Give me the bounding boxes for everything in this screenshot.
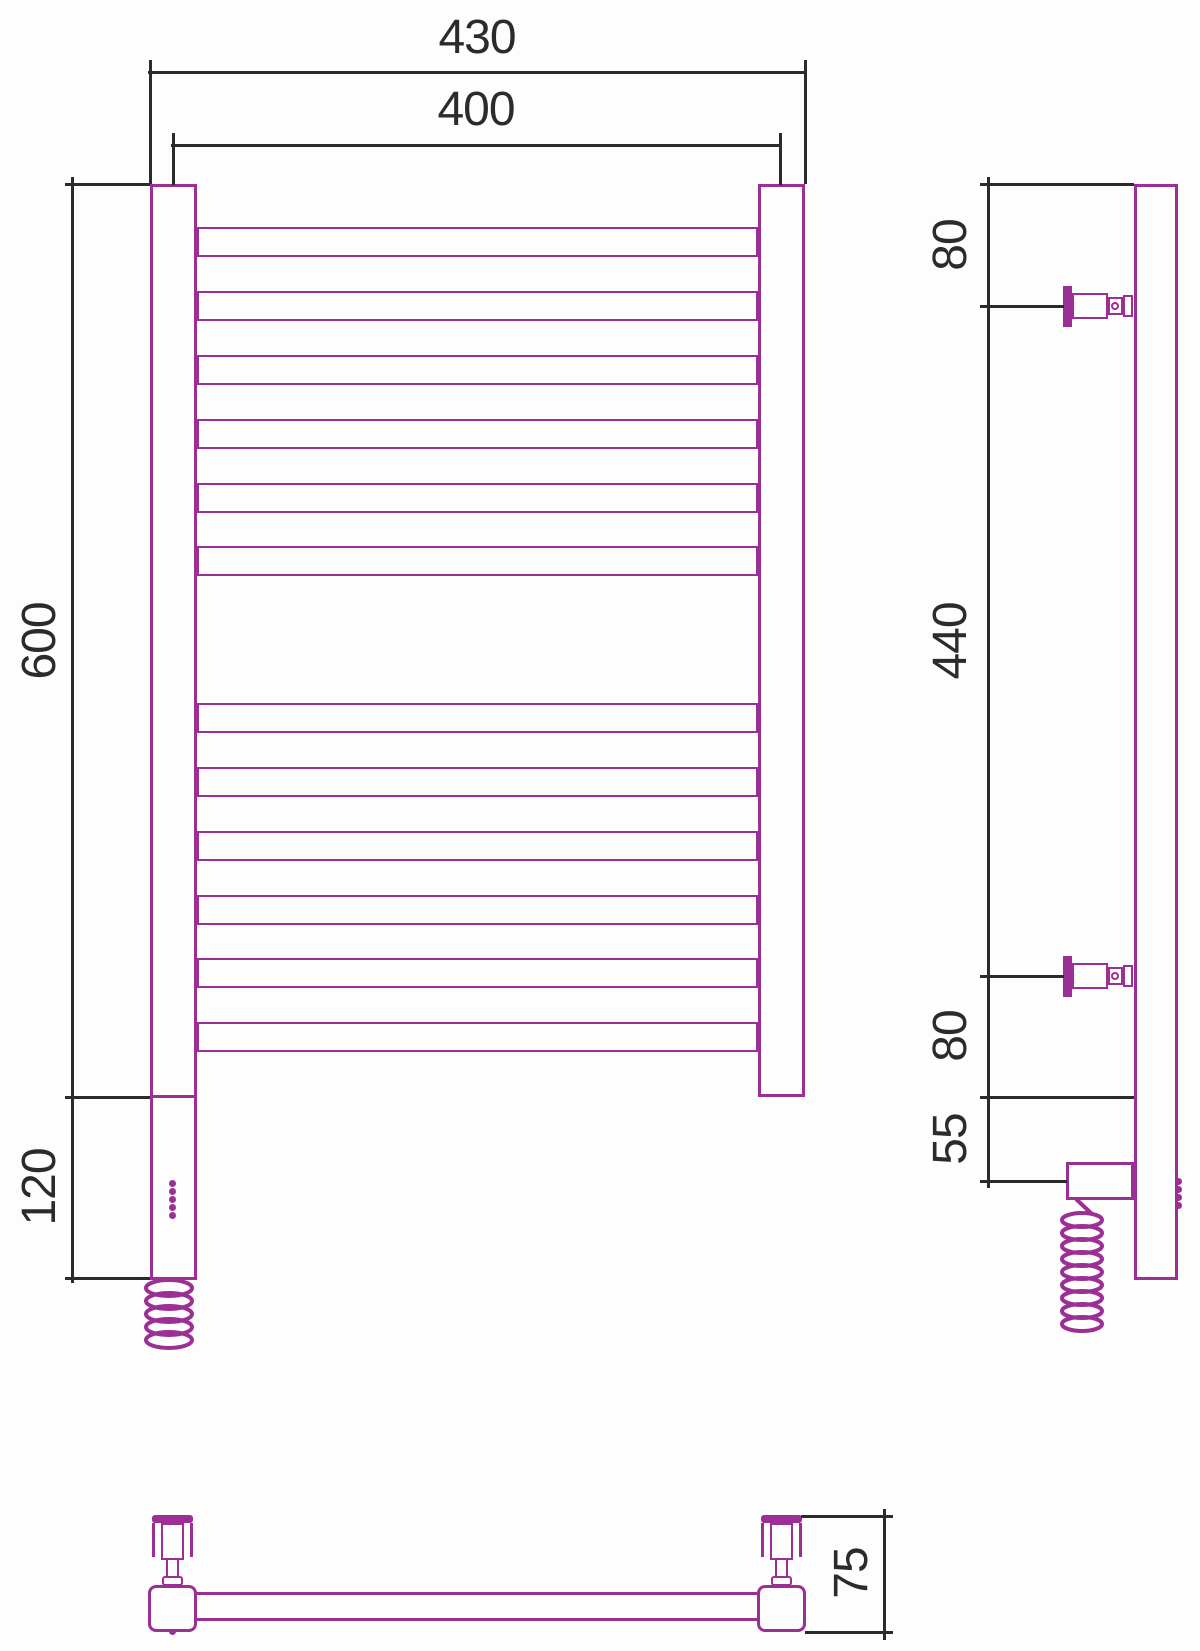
technical-drawing-canvas: 430 400 600 120: [0, 0, 1200, 1651]
plan-left-bracket-skirt: [190, 1523, 193, 1557]
plan-right-bracket-skirt: [799, 1523, 802, 1557]
plan-left-bracket-flange: [152, 1515, 193, 1523]
plan-left-bracket-foot: [162, 1576, 183, 1586]
plan-left-bracket-barrel: [161, 1523, 184, 1560]
tick-75-top: [801, 1515, 893, 1518]
plan-right-bracket-barrel: [770, 1523, 793, 1560]
plan-right-post: [757, 1585, 806, 1632]
dim-line-75: [883, 1509, 886, 1640]
plan-left-bracket-skirt: [152, 1523, 155, 1557]
plan-tube: [197, 1592, 757, 1621]
plan-left-post: [148, 1585, 197, 1632]
tick-75-bottom: [805, 1631, 893, 1634]
plan-right-bracket-foot: [771, 1576, 792, 1586]
plan-right-bracket-neck: [775, 1558, 788, 1578]
plan-right-bracket-flange: [761, 1515, 802, 1523]
dim-label-wall-offset: 75: [828, 1547, 876, 1598]
plan-right-bracket-skirt: [761, 1523, 764, 1557]
top-view: 75: [0, 0, 1200, 1651]
plan-left-bracket-neck: [166, 1558, 179, 1578]
